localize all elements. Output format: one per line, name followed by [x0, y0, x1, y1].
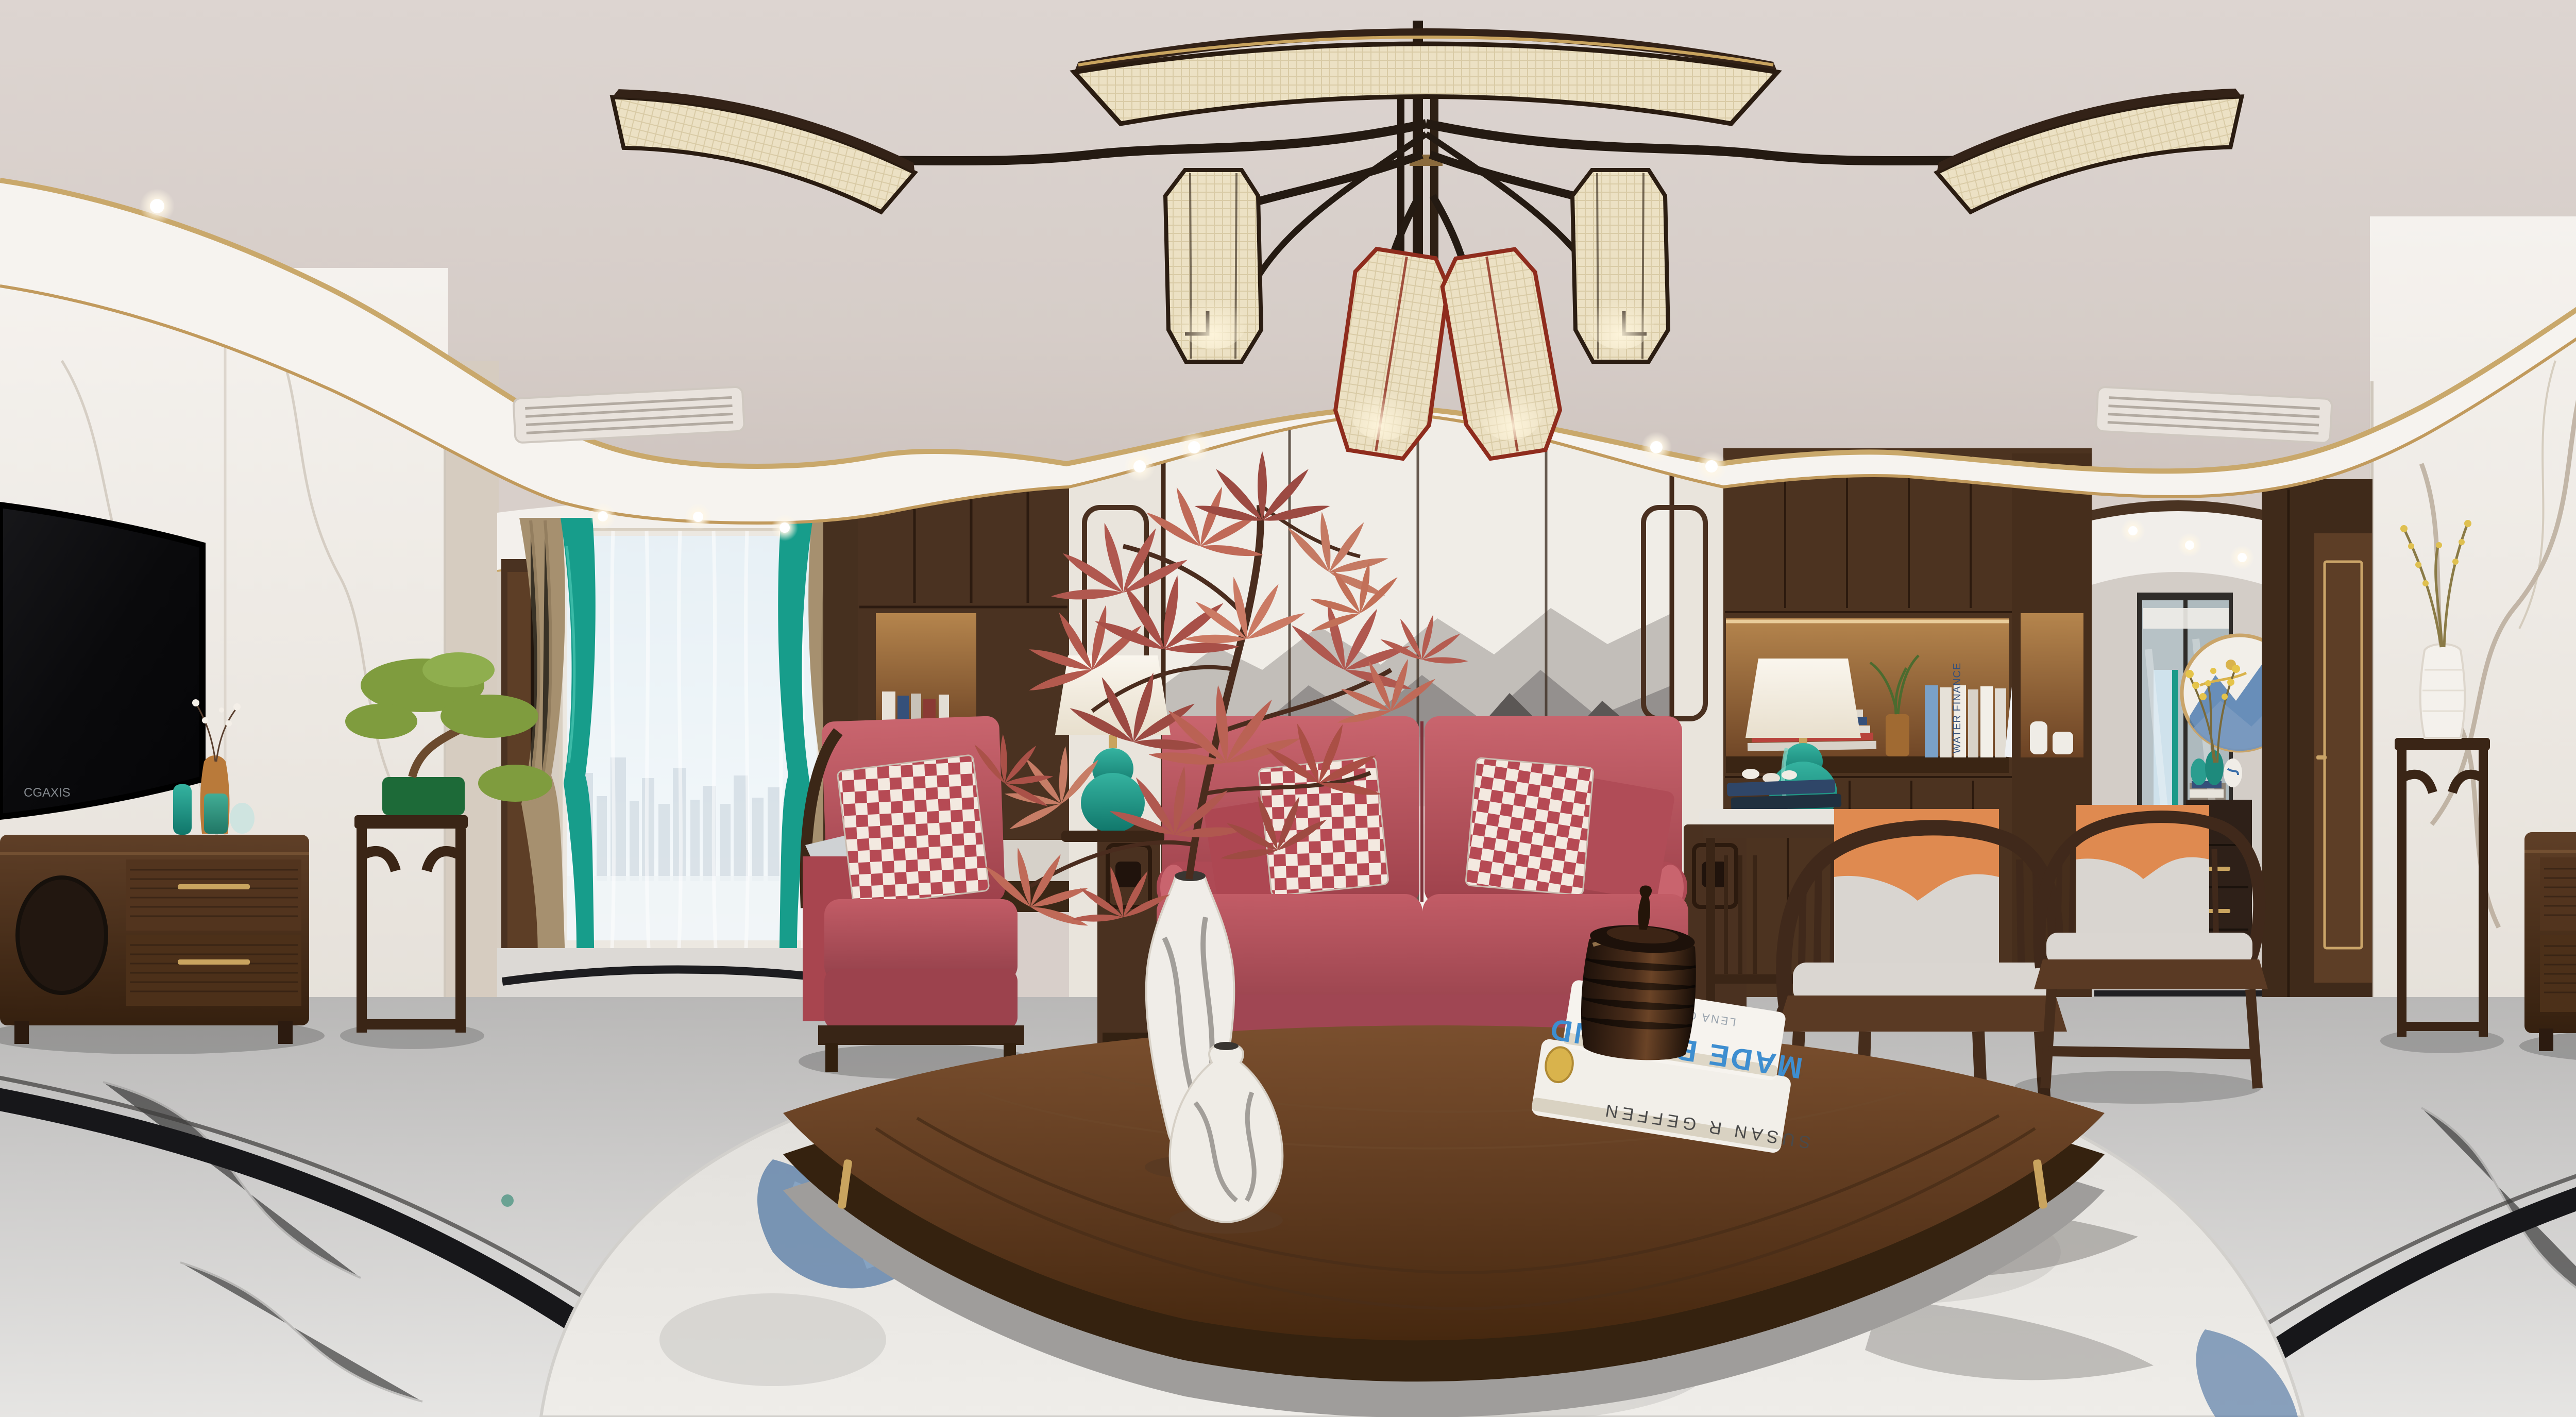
panorama-screenshot: WATER FINANCE MOBY DICK [0, 0, 2576, 1417]
downlight [1641, 432, 1672, 463]
lamp-table-top [1061, 831, 1164, 842]
side-table-marble-top [1699, 809, 1856, 824]
downlight [2177, 533, 2202, 558]
downlight [1124, 451, 1155, 482]
cabinet-oval-inset [18, 878, 106, 993]
armchair-checkered-pillow [837, 755, 989, 907]
drawer-handle [178, 959, 250, 965]
cabinet-drawers [2540, 857, 2576, 1012]
entry-door-wall [2262, 479, 2372, 1010]
chair-seat-frame [1776, 996, 2067, 1032]
stand-top [354, 815, 468, 829]
side-table-apron [1703, 824, 1852, 838]
left-tv: CGAXIS [0, 505, 202, 817]
bonsai-pot [382, 777, 465, 815]
armchair-base [818, 1025, 1024, 1045]
lamp-neck [1109, 735, 1117, 748]
left-armchair [799, 716, 1036, 1079]
downlight [771, 514, 798, 541]
chandelier-lantern-left [1165, 170, 1261, 362]
sofa-checkered-pillow-right [1466, 758, 1594, 896]
tv-screen-left [0, 505, 202, 817]
downlight [1179, 432, 1210, 463]
tv-brand-label: CGAXIS [24, 786, 71, 800]
stand-top [2395, 738, 2490, 750]
downlight [2121, 518, 2145, 543]
chandelier-lantern-right [1572, 170, 1668, 362]
sofa-checkered-pillow-left [1259, 757, 1389, 896]
downlight [2230, 545, 2255, 570]
panorama-scene: WATER FINANCE MOBY DICK [0, 0, 2576, 1417]
shelf-board [1726, 756, 2009, 773]
drawer-handle [178, 884, 250, 889]
shelf-book-title-1: WATER FINANCE [1952, 663, 1963, 753]
lamp-shade [1745, 659, 1861, 738]
downlight [589, 503, 616, 530]
armchair-seat-front [824, 969, 1018, 1030]
downlight [1696, 451, 1727, 482]
chair-seat-frame [2034, 959, 2268, 989]
downlight [685, 503, 711, 530]
downlight [140, 189, 175, 224]
door-handle [2316, 755, 2327, 760]
